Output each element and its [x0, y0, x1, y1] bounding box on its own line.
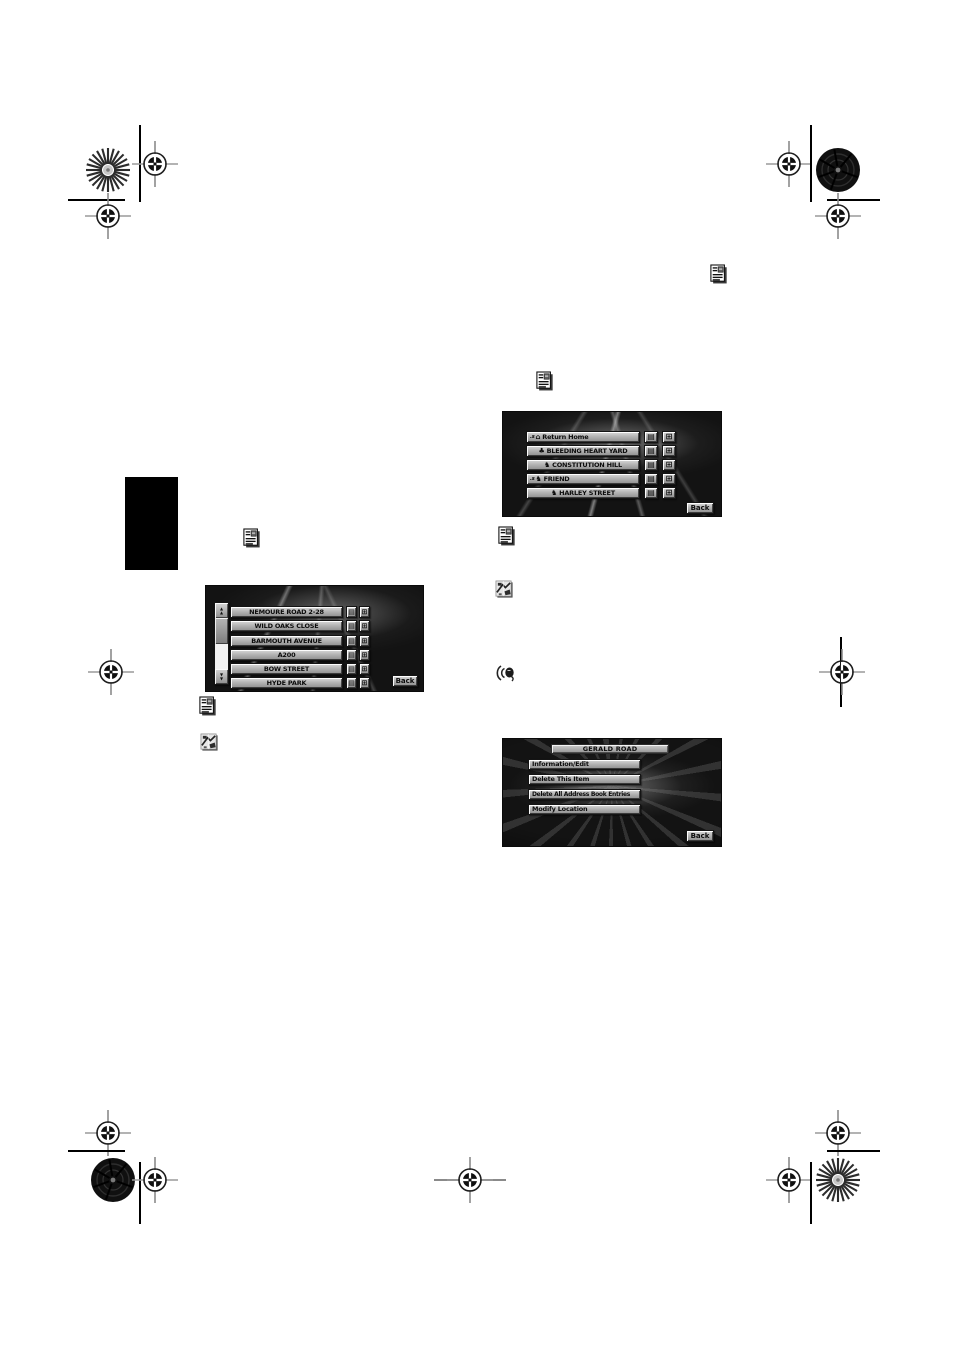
- registration-target-mark: [87, 648, 135, 696]
- address-entry-button[interactable]: ♣ BLEEDING HEART YARD: [526, 445, 640, 457]
- home-icon: ⌂: [535, 434, 540, 441]
- detail-icon: ▤: [348, 623, 355, 630]
- detail-icon: ▤: [647, 447, 655, 455]
- up-arrow-icon: ▲: [220, 611, 223, 615]
- entry-detail-button[interactable]: ▤: [346, 649, 357, 661]
- entry-detail-button[interactable]: ▤: [346, 635, 357, 647]
- registration-target-mark: [446, 1156, 494, 1204]
- map-icon: ⊞: [666, 475, 673, 483]
- street-entry-button[interactable]: HYDE PARK: [230, 677, 343, 689]
- detail-icon: ▤: [647, 461, 655, 469]
- scroll-down-button[interactable]: ▼ ▼: [215, 669, 228, 684]
- manual-page: .s ⌂ Return Home ▤ ⊞ ♣ BLEEDING HEART YA…: [0, 0, 954, 1350]
- map-icon: ⊞: [666, 447, 673, 455]
- voice-tag: .s: [530, 477, 534, 482]
- dark-disc-mark: [89, 1156, 137, 1204]
- detail-icon: ▤: [647, 475, 655, 483]
- map-fragment-icon: [200, 733, 219, 752]
- back-button[interactable]: Back: [686, 502, 714, 514]
- entry-detail-button[interactable]: ▤: [346, 606, 357, 618]
- voice-operation-icon: [494, 663, 516, 683]
- nav-screen-address-book: .s ⌂ Return Home ▤ ⊞ ♣ BLEEDING HEART YA…: [502, 411, 722, 517]
- street-entry-button[interactable]: BARMOUTH AVENUE: [230, 635, 343, 647]
- registration-target-mark: [814, 192, 862, 240]
- menu-item-delete-this-item[interactable]: Delete This Item: [528, 774, 641, 785]
- registration-target-mark: [818, 648, 866, 696]
- scroll-thumb[interactable]: [215, 618, 228, 644]
- entry-map-button[interactable]: ⊞: [359, 635, 370, 647]
- entry-map-button[interactable]: ⊞: [662, 459, 676, 471]
- document-note-icon: [710, 264, 728, 284]
- entry-map-button[interactable]: ⊞: [359, 606, 370, 618]
- chapter-edge-tab: [125, 477, 178, 570]
- crop-line: [810, 1162, 812, 1224]
- map-fragment-icon: [495, 580, 514, 599]
- address-entry-button[interactable]: .s ⌂ Return Home: [526, 431, 640, 443]
- detail-icon: ▤: [348, 652, 355, 659]
- nav-screen-edit-menu: GERALD ROAD Information/Edit Delete This…: [502, 738, 722, 847]
- back-button[interactable]: Back: [686, 830, 714, 842]
- entry-map-button[interactable]: ⊞: [662, 473, 676, 485]
- map-icon: ⊞: [362, 623, 368, 630]
- entry-detail-button[interactable]: ▤: [644, 459, 658, 471]
- entry-map-button[interactable]: ⊞: [359, 620, 370, 632]
- entry-detail-button[interactable]: ▤: [644, 445, 658, 457]
- detail-icon: ▤: [348, 666, 355, 673]
- map-icon: ⊞: [362, 666, 368, 673]
- street-entry-button[interactable]: BOW STREET: [230, 663, 343, 675]
- entry-map-button[interactable]: ⊞: [662, 431, 676, 443]
- scrollbar[interactable]: ▲ ▲ ▼ ▼: [214, 602, 229, 685]
- document-note-icon: [536, 371, 554, 391]
- crop-line: [68, 1150, 125, 1152]
- address-entry-button[interactable]: .s ♞ FRIEND: [526, 473, 640, 485]
- poi-icon: ♞: [551, 490, 557, 497]
- address-entry-button[interactable]: ♞ HARLEY STREET: [526, 487, 640, 499]
- map-icon: ⊞: [362, 638, 368, 645]
- street-entry-button[interactable]: NEMOURE ROAD 2-28: [230, 606, 343, 618]
- address-entry-button[interactable]: ♞ CONSTITUTION HILL: [526, 459, 640, 471]
- detail-icon: ▤: [348, 609, 355, 616]
- entry-detail-button[interactable]: ▤: [644, 487, 658, 499]
- crop-line: [827, 1150, 880, 1152]
- flower-poi-icon: ♣: [539, 448, 545, 455]
- poi-icon: ♞: [544, 462, 550, 469]
- document-note-icon: [498, 526, 516, 546]
- map-icon: ⊞: [362, 652, 368, 659]
- detail-icon: ▤: [647, 489, 655, 497]
- entry-map-button[interactable]: ⊞: [662, 445, 676, 457]
- detail-icon: ▤: [348, 638, 355, 645]
- registration-target-mark: [131, 140, 179, 188]
- screen-title-bar: GERALD ROAD: [551, 744, 669, 754]
- back-button[interactable]: Back: [392, 675, 418, 687]
- poi-icon: ♞: [535, 476, 541, 483]
- menu-item-delete-all-entries[interactable]: Delete All Address Book Entries: [528, 789, 641, 800]
- down-arrow-icon: ▼: [220, 677, 223, 681]
- map-icon: ⊞: [666, 489, 673, 497]
- registration-target-mark: [84, 192, 132, 240]
- map-icon: ⊞: [362, 609, 368, 616]
- menu-item-modify-location[interactable]: Modify Location: [528, 804, 641, 815]
- registration-target-mark: [765, 140, 813, 188]
- voice-tag: .s: [530, 435, 534, 440]
- document-note-icon: [243, 528, 261, 548]
- entry-detail-button[interactable]: ▤: [644, 431, 658, 443]
- crop-line: [810, 125, 812, 202]
- entry-map-button[interactable]: ⊞: [662, 487, 676, 499]
- street-entry-button[interactable]: WILD OAKS CLOSE: [230, 620, 343, 632]
- nav-screen-street-list: ▲ ▲ ▼ ▼ NEMOURE ROAD 2-28 ▤ ⊞ WILD OAKS …: [205, 585, 424, 692]
- scroll-up-button[interactable]: ▲ ▲: [215, 603, 228, 618]
- entry-detail-button[interactable]: ▤: [346, 663, 357, 675]
- pinwheel-mark: [84, 146, 132, 194]
- registration-target-mark: [765, 1156, 813, 1204]
- registration-target-mark: [131, 1156, 179, 1204]
- pinwheel-mark: [814, 1156, 862, 1204]
- map-icon: ⊞: [362, 680, 368, 687]
- entry-detail-button[interactable]: ▤: [346, 620, 357, 632]
- entry-detail-button[interactable]: ▤: [644, 473, 658, 485]
- dark-disc-mark: [814, 146, 862, 194]
- entry-map-button[interactable]: ⊞: [359, 663, 370, 675]
- document-note-icon: [199, 696, 217, 716]
- map-icon: ⊞: [666, 433, 673, 441]
- screen-title: GERALD ROAD: [583, 745, 638, 753]
- detail-icon: ▤: [348, 680, 355, 687]
- menu-item-information-edit[interactable]: Information/Edit: [528, 759, 641, 770]
- map-icon: ⊞: [666, 461, 673, 469]
- entry-detail-button[interactable]: ▤: [346, 677, 357, 689]
- entry-map-button[interactable]: ⊞: [359, 677, 370, 689]
- entry-map-button[interactable]: ⊞: [359, 649, 370, 661]
- street-entry-button[interactable]: A200: [230, 649, 343, 661]
- detail-icon: ▤: [647, 433, 655, 441]
